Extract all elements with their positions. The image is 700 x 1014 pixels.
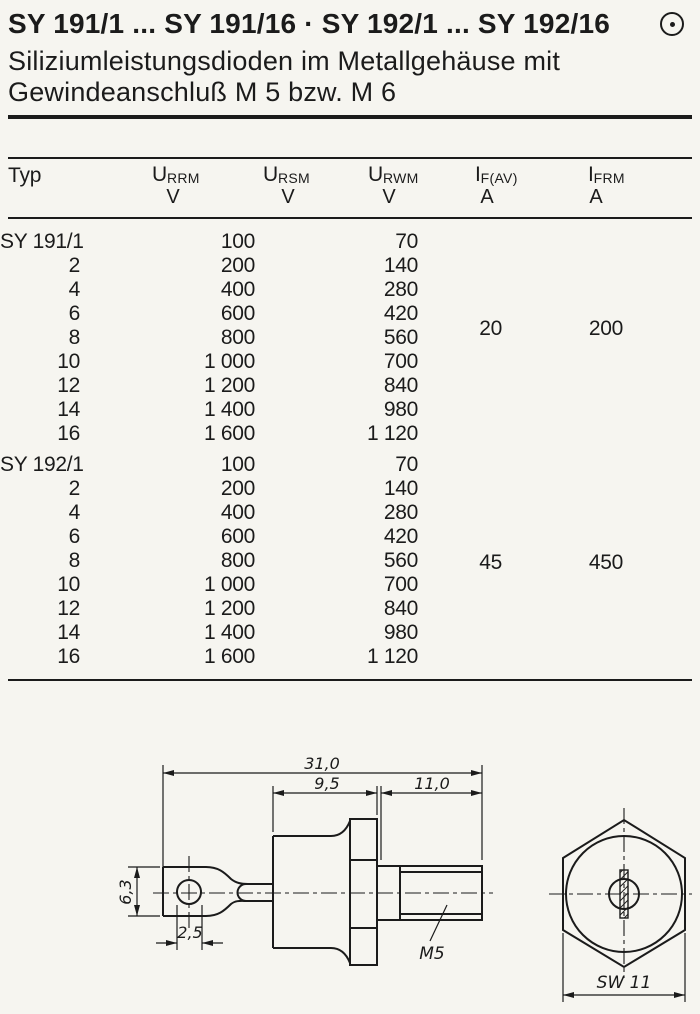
table-row: 101 000700 xyxy=(0,573,700,597)
dim-lug-width: 6,3 xyxy=(116,879,135,904)
table-row: 121 200840 xyxy=(0,597,700,621)
col-header-urrm: URRM xyxy=(152,163,200,187)
ifav-value-sy192: 45 xyxy=(442,551,502,575)
table-row: SY 192/110070 xyxy=(0,453,700,477)
col-unit-urrm: V xyxy=(148,186,198,209)
col-unit-ursm: V xyxy=(263,186,313,209)
col-unit-urwm: V xyxy=(364,186,414,209)
ifav-value-sy191: 20 xyxy=(442,317,502,341)
table-section-sy192: SY 192/110070 2200140 4400280 6600420 88… xyxy=(0,453,700,669)
col-header-ifav: IF(AV) xyxy=(475,163,518,187)
table-row: 121 200840 xyxy=(0,374,700,398)
table-row: 6600420 xyxy=(0,525,700,549)
ifrm-value-sy192: 450 xyxy=(543,551,623,575)
col-unit-ifrm: A xyxy=(571,186,621,209)
technical-drawing: 31,0 9,5 11,0 6,3 2,5 M5 xyxy=(0,700,700,1014)
col-header-urwm: URWM xyxy=(368,163,419,187)
table-row: 141 400980 xyxy=(0,621,700,645)
dim-wrench-size: SW 11 xyxy=(597,973,652,993)
col-unit-ifav: A xyxy=(462,186,512,209)
dim-case-length: 9,5 xyxy=(314,774,339,793)
col-header-ursm: URSM xyxy=(263,163,310,187)
table-row: 2200140 xyxy=(0,254,700,278)
ifrm-value-sy191: 200 xyxy=(543,317,623,341)
table-row: 4400280 xyxy=(0,278,700,302)
col-header-ifrm: IFRM xyxy=(588,163,625,187)
table-header-rule xyxy=(8,217,692,219)
table-row: 101 000700 xyxy=(0,350,700,374)
page-title: SY 191/1 ... SY 191/16 · SY 192/1 ... SY… xyxy=(8,8,610,40)
table-section-sy191: SY 191/110070 2200140 4400280 6600420 88… xyxy=(0,230,700,446)
dim-hole-dia: 2,5 xyxy=(177,923,202,942)
table-row: 141 400980 xyxy=(0,398,700,422)
dim-total-length: 31,0 xyxy=(304,754,340,773)
table-row: 161 6001 120 xyxy=(0,645,700,669)
table-top-rule xyxy=(8,157,692,159)
dim-thread-label: M5 xyxy=(419,944,444,964)
header-rule xyxy=(8,115,692,119)
circle-dot-icon xyxy=(660,12,684,36)
dim-stud-length: 11,0 xyxy=(414,774,450,793)
table-row: SY 191/110070 xyxy=(0,230,700,254)
table-row: 4400280 xyxy=(0,501,700,525)
subtitle-line-1: Siliziumleistungsdioden im Metallgehäuse… xyxy=(8,46,560,77)
table-row: 161 6001 120 xyxy=(0,422,700,446)
datasheet-page: SY 191/1 ... SY 191/16 · SY 192/1 ... SY… xyxy=(0,0,700,1014)
subtitle-line-2: Gewindeanschluß M 5 bzw. M 6 xyxy=(8,77,560,108)
table-row: 2200140 xyxy=(0,477,700,501)
page-subtitle: Siliziumleistungsdioden im Metallgehäuse… xyxy=(8,46,560,108)
table-bottom-rule xyxy=(8,679,692,681)
col-header-typ: Typ xyxy=(8,164,41,188)
